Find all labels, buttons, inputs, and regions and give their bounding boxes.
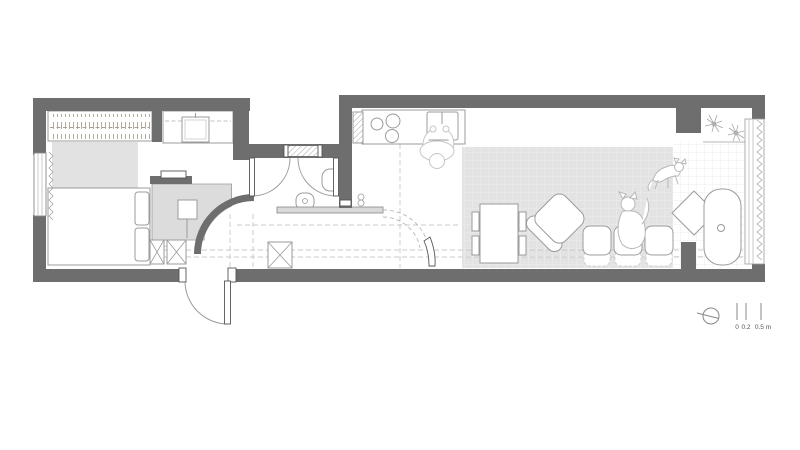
duct-shafts [150,240,292,268]
chair [519,236,526,255]
duct-shaft [150,240,164,264]
door-bedroom [250,158,291,196]
shower-drain [178,200,197,219]
half-wall-ledge [277,207,383,213]
scale-bar: 0 0.2 0.5 m [697,303,771,331]
wardrobe [48,111,152,141]
hinge-icon [358,194,364,206]
bed [48,188,150,265]
wc [277,169,383,213]
floor-plan-page: 0 0.2 0.5 m [0,0,800,450]
plant-icon [728,124,744,141]
chair [472,236,479,255]
window-left [34,153,46,216]
window-right [745,119,764,264]
door-leaf [334,158,339,196]
duct-shaft [268,242,292,268]
bedroom-rug [52,142,138,190]
duct-shaft [167,240,186,264]
scale-label: 0.2 [741,324,750,331]
chair [472,212,479,231]
compass-icon [697,308,719,324]
scale-label: 0.5 m [755,324,771,331]
scale-label: 0 [735,324,739,331]
closet [163,111,233,143]
pivot-door [383,210,435,266]
sofa-cushion [645,226,673,255]
door-frame [228,268,236,282]
dining-table [480,204,518,263]
sofa-cushion [583,226,611,255]
wall-end-frame [340,200,351,206]
dining-area [472,204,526,263]
door-leaf [225,281,231,324]
drawer-unit [182,117,209,142]
door-leaf [424,237,435,266]
entrance-door [185,281,231,324]
pillow [135,192,149,225]
shower-shelf [161,171,186,178]
bathtub [704,189,741,265]
chair [519,212,526,231]
door-frame [318,145,322,157]
door-frame [284,145,288,157]
floor-plan-drawing: 0 0.2 0.5 m [0,0,800,450]
pillow [135,228,149,261]
door-leaf [250,158,255,196]
plant-icon [705,115,723,132]
door-frame [179,268,186,282]
kitchen [353,110,465,169]
